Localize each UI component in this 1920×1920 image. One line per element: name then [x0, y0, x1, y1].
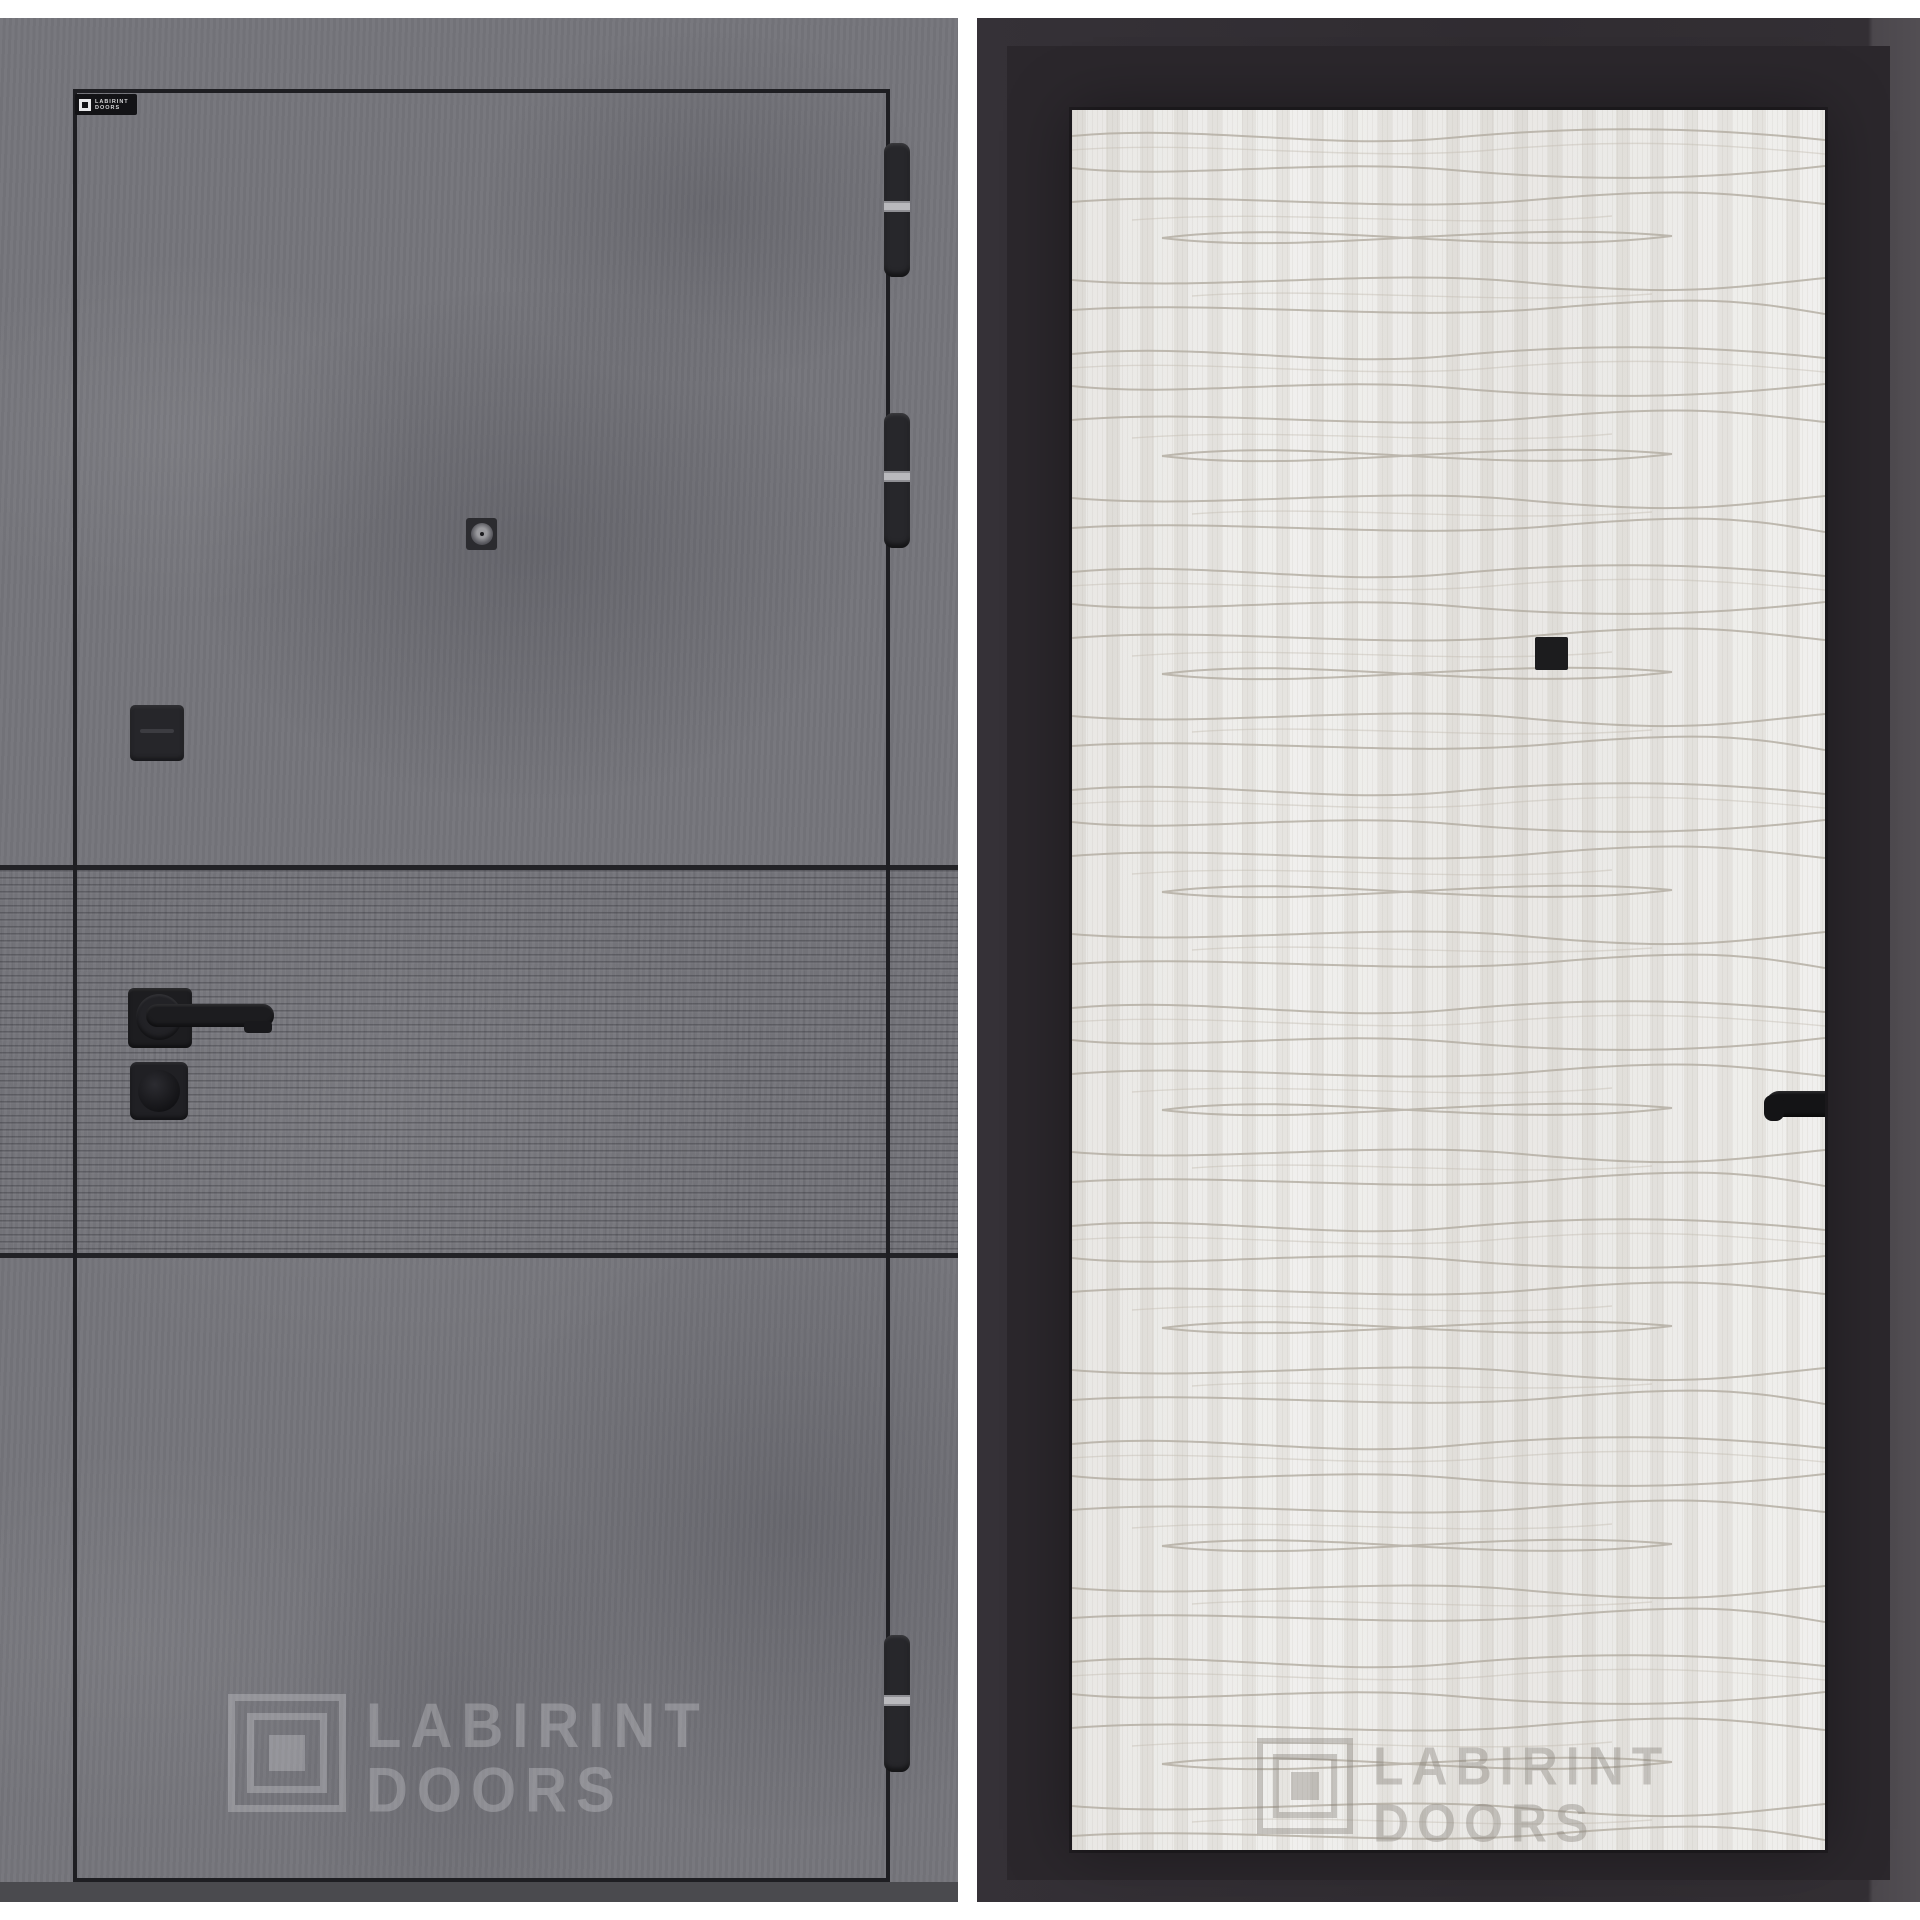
- brand-badge: LABIRINT DOORS: [75, 94, 137, 115]
- left-door-photo: LABIRINT DOORS LABIRINT DOORS: [0, 18, 958, 1902]
- hinge-bottom: [884, 1635, 910, 1772]
- hinge-band: [884, 1695, 910, 1706]
- product-image-two-door-sides: LABIRINT DOORS LABIRINT DOORS: [0, 0, 1920, 1920]
- door-handle-lever: [1766, 1091, 1825, 1117]
- watermark-text: LABIRINT DOORS: [1373, 1738, 1670, 1850]
- watermark-line2: DOORS: [366, 1759, 709, 1824]
- watermark-line2: DOORS: [1373, 1795, 1670, 1850]
- floor-shadow-strip: [0, 1882, 958, 1902]
- right-door-photo: LABIRINT DOORS: [977, 18, 1920, 1902]
- lock-cover-plate: [130, 705, 184, 761]
- wave-groove-pattern: [1072, 110, 1825, 1850]
- labyrinth-logo-core: [269, 1735, 305, 1771]
- hinge-top: [884, 143, 910, 277]
- watermark-right: LABIRINT DOORS: [1257, 1738, 1670, 1844]
- watermark-text: LABIRINT DOORS: [366, 1694, 709, 1824]
- peephole-lens-icon: [471, 523, 493, 545]
- hinge-band: [884, 201, 910, 212]
- white-sandal-panel: LABIRINT DOORS: [1072, 110, 1825, 1850]
- labyrinth-logo-icon: [1257, 1738, 1353, 1834]
- watermark-left: LABIRINT DOORS: [228, 1694, 709, 1814]
- watermark-line1: LABIRINT: [1373, 1738, 1670, 1795]
- labyrinth-logo-icon: [228, 1694, 346, 1812]
- brand-badge-label: LABIRINT DOORS: [95, 99, 129, 111]
- watermark-line1: LABIRINT: [366, 1694, 709, 1759]
- peephole: [1535, 637, 1568, 670]
- cylinder-cap-icon: [138, 1070, 180, 1112]
- labyrinth-logo-core: [1291, 1772, 1319, 1800]
- cylinder-lock: [130, 1062, 188, 1120]
- brand-logo-icon: [79, 99, 91, 111]
- hinge-band: [884, 471, 910, 482]
- door-handle-lever: [146, 1004, 274, 1027]
- peephole: [466, 518, 497, 550]
- door-leaf-outline: [73, 89, 890, 1882]
- hinge-middle: [884, 413, 910, 548]
